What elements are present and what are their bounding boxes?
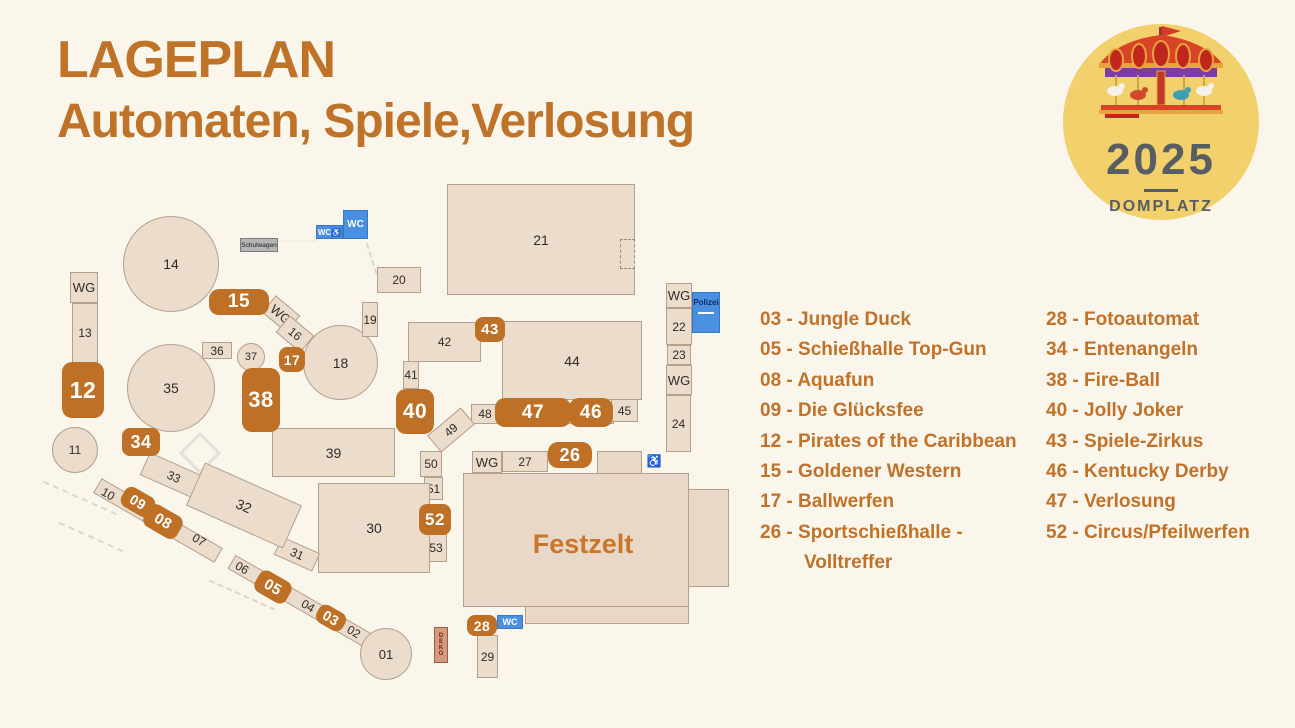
map-marker-17: 17	[279, 347, 305, 372]
map-building-11: 11	[52, 427, 98, 473]
deko-box: DEKO	[434, 627, 448, 663]
festzelt-label: Festzelt	[503, 529, 663, 560]
map-building-37: 37	[237, 343, 265, 371]
map-building-30: 30	[318, 483, 430, 573]
legend-item-09: 09 - Die Glücksfee	[760, 396, 1017, 426]
path-line	[59, 522, 124, 552]
map-wg-box-1: WG	[70, 272, 98, 303]
festzelt-right-wing	[686, 489, 729, 587]
event-logo-badge: 2025 DOMPLATZ	[1063, 24, 1259, 220]
logo-year: 2025	[1106, 138, 1216, 182]
map-marker-15: 15	[209, 289, 269, 315]
map-building-41: 41	[403, 361, 419, 389]
legend-item-12: 12 - Pirates of the Caribbean	[760, 427, 1017, 457]
map-marker-26: 26	[548, 442, 592, 468]
legend-column-right: 28 - Fotoautomat 34 - Entenangeln 38 - F…	[1046, 305, 1250, 548]
map-building-13: 13	[72, 303, 98, 363]
schulwagen-box: Schulwagen	[240, 238, 278, 252]
map-building-44: 44	[502, 321, 642, 400]
wc-box-festzelt: WC	[497, 615, 523, 629]
festzelt-bottom-wing	[525, 604, 689, 624]
map-building-50: 50	[420, 451, 442, 477]
map-marker-38: 38	[242, 368, 280, 432]
map-building-22: 22	[666, 308, 692, 345]
legend-item-26: 26 - Sportschießhalle -	[760, 518, 1017, 548]
legend-item-43: 43 - Spiele-Zirkus	[1046, 427, 1250, 457]
polizei-label: Polizei	[693, 298, 718, 307]
legend-item-17: 17 - Ballwerfen	[760, 487, 1017, 517]
map-marker-52: 52	[419, 504, 451, 535]
map-wg-box-4: WG	[666, 365, 692, 395]
polizei-sub-text	[698, 312, 714, 314]
map-marker-40: 40	[396, 389, 434, 434]
carousel-icon	[1091, 24, 1231, 136]
legend-item-40: 40 - Jolly Joker	[1046, 396, 1250, 426]
legend-item-15: 15 - Goldener Western	[760, 457, 1017, 487]
deko-label: DEKO	[438, 633, 444, 657]
map-marker-43: 43	[475, 317, 505, 342]
legend-item-08: 08 - Aquafun	[760, 366, 1017, 396]
legend-item-52: 52 - Circus/Pfeilwerfen	[1046, 518, 1250, 548]
legend-item-03: 03 - Jungle Duck	[760, 305, 1017, 335]
wc-box-top: WC	[343, 210, 368, 239]
map-wg-box-3: WG	[666, 283, 692, 308]
page-title-line2: Automaten, Spiele,Verlosung	[57, 98, 694, 146]
map-marker-28: 28	[467, 615, 497, 636]
map-marker-34: 34	[122, 428, 160, 456]
map-building-14: 14	[123, 216, 219, 312]
map-building-29: 29	[477, 635, 498, 678]
map-marker-46: 46	[569, 398, 613, 427]
map-wg-box-5: WG	[472, 451, 502, 473]
map-building-42: 42	[408, 322, 481, 362]
logo-venue: DOMPLATZ	[1109, 198, 1213, 216]
legend-column-left: 03 - Jungle Duck 05 - Schießhalle Top-Gu…	[760, 305, 1017, 579]
logo-divider	[1144, 189, 1178, 192]
map-building-23: 23	[667, 345, 691, 365]
map-building-01: 01	[360, 628, 412, 680]
legend-item-05: 05 - Schießhalle Top-Gun	[760, 335, 1017, 365]
map-building-45: 45	[611, 399, 638, 422]
lageplan-poster: { "title": { "line1": "LAGEPLAN", "line2…	[0, 0, 1295, 728]
map-marker-12: 12	[62, 362, 104, 418]
legend-item-34: 34 - Entenangeln	[1046, 335, 1250, 365]
map-building-21-notch	[620, 239, 635, 269]
legend-item-38: 38 - Fire-Ball	[1046, 366, 1250, 396]
map-building-19: 19	[362, 302, 378, 337]
map-building-39: 39	[272, 428, 395, 477]
legend-item-47: 47 - Verlosung	[1046, 487, 1250, 517]
map-building-21: 21	[447, 184, 635, 295]
legend-item-28: 28 - Fotoautomat	[1046, 305, 1250, 335]
map-building-49: 49	[427, 407, 475, 452]
legend-item-26-line2: Volltreffer	[760, 548, 1017, 578]
legend-item-46: 46 - Kentucky Derby	[1046, 457, 1250, 487]
page-title-line1: LAGEPLAN	[57, 34, 335, 86]
map-building-27: 27	[502, 451, 548, 472]
map-building-36: 36	[202, 342, 232, 359]
wheelchair-icon: ♿	[645, 453, 663, 469]
wc-accessible-box: WC♿	[316, 225, 343, 239]
map-marker-47: 47	[495, 398, 571, 427]
map-building-24: 24	[666, 395, 691, 452]
polizei-box: Polizei	[692, 292, 720, 333]
festzelt-top-wing	[597, 451, 642, 475]
map-building-20: 20	[377, 267, 421, 293]
